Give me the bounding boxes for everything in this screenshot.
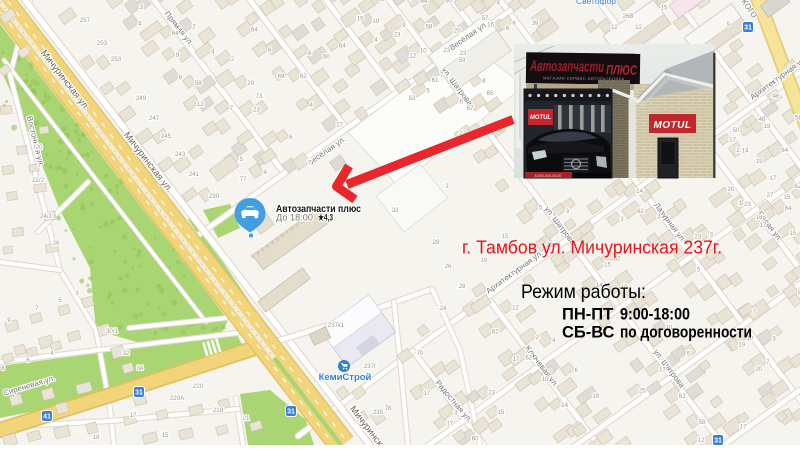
svg-text:17: 17: [446, 420, 453, 427]
svg-text:9: 9: [402, 22, 406, 29]
svg-text:12: 12: [611, 24, 618, 31]
svg-text:58: 58: [425, 23, 432, 30]
svg-text:12: 12: [197, 101, 204, 108]
svg-text:243: 243: [175, 151, 186, 158]
svg-text:8: 8: [482, 78, 486, 85]
svg-text:218: 218: [213, 407, 224, 414]
svg-text:по договоренности: по договоренности: [620, 324, 752, 342]
svg-text:245: 245: [161, 133, 172, 140]
svg-text:20: 20: [755, 366, 762, 373]
svg-text:9: 9: [7, 317, 11, 324]
svg-text:17: 17: [130, 412, 137, 419]
svg-text:6: 6: [268, 47, 272, 54]
svg-text:31: 31: [287, 409, 295, 416]
svg-text:15: 15: [487, 21, 494, 28]
svg-text:64: 64: [339, 42, 346, 49]
svg-text:41: 41: [43, 414, 51, 421]
svg-text:62: 62: [679, 393, 686, 400]
svg-text:60: 60: [445, 0, 452, 4]
svg-text:6: 6: [289, 134, 293, 141]
svg-text:17: 17: [770, 175, 777, 182]
svg-text:14: 14: [636, 188, 643, 195]
svg-text:15: 15: [357, 15, 364, 22]
svg-text:22/2: 22/2: [32, 177, 45, 184]
svg-text:9: 9: [176, 52, 180, 59]
svg-text:4: 4: [50, 350, 54, 357]
svg-text:19: 19: [756, 158, 763, 165]
svg-text:58: 58: [795, 115, 800, 122]
svg-text:4: 4: [138, 20, 142, 27]
svg-text:3: 3: [454, 410, 458, 417]
svg-text:23: 23: [488, 390, 495, 397]
svg-text:4: 4: [374, 37, 378, 44]
svg-text:62: 62: [794, 183, 800, 190]
svg-text:220А: 220А: [170, 395, 185, 402]
svg-text:5: 5: [687, 351, 691, 358]
svg-text:24/1: 24/1: [40, 213, 53, 220]
svg-text:2: 2: [231, 56, 235, 63]
svg-text:28: 28: [459, 283, 466, 290]
svg-text:64: 64: [785, 205, 792, 212]
svg-text:MOTUL: MOTUL: [653, 120, 691, 131]
svg-text:237г: 237г: [364, 363, 377, 370]
svg-text:64: 64: [251, 27, 258, 34]
svg-text:12: 12: [635, 24, 642, 31]
svg-text:237к1: 237к1: [328, 322, 345, 329]
svg-text:14: 14: [561, 402, 568, 409]
svg-text:5: 5: [539, 204, 543, 211]
svg-text:235: 235: [373, 409, 384, 416]
svg-text:33: 33: [392, 207, 399, 214]
svg-text:4: 4: [263, 169, 267, 176]
svg-text:★4,3: ★4,3: [318, 213, 333, 224]
svg-text:5: 5: [240, 156, 244, 163]
svg-text:6: 6: [506, 25, 510, 32]
svg-text:50: 50: [733, 127, 740, 134]
svg-text:60: 60: [323, 53, 330, 60]
svg-text:59: 59: [459, 57, 466, 64]
svg-text:17: 17: [513, 356, 520, 363]
svg-text:73: 73: [256, 93, 263, 100]
svg-text:19: 19: [592, 393, 599, 400]
svg-text:78: 78: [385, 405, 392, 412]
svg-text:23: 23: [253, 107, 260, 114]
svg-text:12: 12: [698, 437, 705, 444]
svg-text:г. Тамбов ул. Мичуринская 237г: г. Тамбов ул. Мичуринская 237г.: [462, 237, 722, 258]
svg-text:63: 63: [409, 95, 416, 102]
svg-text:39: 39: [532, 20, 539, 27]
svg-text:46: 46: [773, 93, 780, 100]
svg-text:19: 19: [372, 18, 379, 25]
svg-text:До 18:00: До 18:00: [276, 213, 313, 224]
svg-text:69: 69: [278, 73, 285, 80]
svg-text:241: 241: [189, 171, 200, 178]
svg-text:3: 3: [772, 335, 776, 342]
svg-text:31: 31: [744, 25, 752, 32]
svg-text:15: 15: [661, 5, 668, 12]
svg-text:10: 10: [420, 48, 427, 55]
svg-text:67: 67: [467, 105, 474, 112]
svg-text:58: 58: [195, 80, 202, 87]
svg-text:7: 7: [308, 159, 312, 166]
svg-text:48: 48: [759, 116, 766, 123]
svg-text:Режим работы:: Режим работы:: [521, 281, 646, 303]
svg-text:62: 62: [492, 328, 499, 335]
svg-text:34: 34: [137, 365, 144, 372]
svg-text:62: 62: [637, 208, 644, 215]
svg-text:19: 19: [763, 123, 770, 130]
svg-text:9: 9: [179, 74, 183, 81]
svg-text:15: 15: [784, 194, 791, 201]
svg-text:31: 31: [714, 438, 722, 445]
svg-text:17: 17: [659, 367, 666, 374]
svg-text:9: 9: [726, 21, 730, 28]
svg-text:70: 70: [417, 350, 424, 357]
svg-text:3: 3: [620, 216, 624, 223]
svg-text:25: 25: [639, 387, 646, 394]
svg-text:19: 19: [481, 257, 488, 264]
svg-text:5: 5: [426, 87, 430, 94]
svg-text:18: 18: [93, 434, 100, 441]
svg-text:60: 60: [472, 435, 479, 442]
svg-text:64: 64: [781, 147, 788, 154]
svg-text:3: 3: [140, 4, 144, 11]
svg-text:4: 4: [309, 102, 313, 109]
svg-text:15: 15: [497, 409, 504, 416]
svg-text:14: 14: [742, 148, 749, 155]
svg-text:61: 61: [432, 77, 439, 84]
svg-text:5: 5: [697, 267, 701, 274]
svg-text:23: 23: [443, 47, 450, 54]
svg-text:3: 3: [657, 214, 661, 221]
svg-text:31: 31: [135, 390, 143, 397]
svg-text:3: 3: [75, 290, 79, 297]
svg-text:253: 253: [97, 40, 108, 47]
svg-text:17: 17: [336, 121, 343, 128]
svg-text:7: 7: [230, 105, 234, 112]
svg-text:77: 77: [240, 176, 247, 183]
svg-text:32: 32: [123, 350, 130, 357]
svg-text:6: 6: [459, 98, 463, 105]
svg-text:4: 4: [552, 337, 556, 344]
svg-text:15: 15: [162, 432, 169, 439]
svg-text:58: 58: [698, 419, 705, 426]
svg-text:15: 15: [604, 261, 611, 268]
svg-text:20: 20: [454, 28, 461, 35]
svg-text:2: 2: [407, 0, 411, 3]
svg-text:26В: 26В: [622, 13, 633, 20]
svg-text:-24: -24: [438, 305, 448, 312]
svg-text:23: 23: [744, 201, 751, 208]
svg-text:30/1: 30/1: [106, 328, 119, 335]
svg-text:20: 20: [36, 144, 43, 151]
svg-text:7: 7: [766, 359, 770, 366]
svg-text:9:00-18:00: 9:00-18:00: [620, 306, 690, 324]
svg-text:17: 17: [759, 222, 766, 229]
svg-text:28: 28: [433, 239, 440, 246]
svg-text:7: 7: [440, 72, 444, 79]
svg-text:16: 16: [756, 214, 763, 221]
svg-text:64: 64: [420, 0, 427, 5]
svg-text:3: 3: [445, 183, 449, 190]
svg-text:19: 19: [738, 342, 745, 349]
svg-text:257: 257: [80, 17, 91, 24]
svg-text:10: 10: [542, 376, 549, 383]
svg-text:17: 17: [424, 390, 431, 397]
svg-text:2: 2: [536, 334, 540, 341]
svg-text:253: 253: [111, 56, 122, 63]
svg-text:239: 239: [209, 193, 220, 200]
svg-text:12: 12: [512, 305, 519, 312]
svg-text:20: 20: [728, 186, 735, 193]
svg-text:12: 12: [409, 52, 416, 59]
svg-text:7: 7: [35, 305, 39, 312]
svg-text:17: 17: [729, 136, 736, 143]
svg-text:249: 249: [136, 95, 147, 102]
svg-text:62: 62: [525, 354, 532, 361]
svg-text:247: 247: [149, 115, 160, 122]
svg-text:27: 27: [767, 192, 774, 199]
svg-text:9: 9: [512, 21, 516, 28]
svg-text:7: 7: [753, 309, 757, 316]
svg-text:Автозапчасти: Автозапчасти: [529, 58, 604, 76]
svg-text:20: 20: [247, 80, 254, 87]
svg-text:10: 10: [381, 0, 388, 2]
svg-text:26: 26: [53, 240, 60, 247]
svg-text:6: 6: [308, 50, 312, 57]
svg-text:4: 4: [496, 0, 500, 7]
svg-text:21: 21: [243, 415, 250, 422]
svg-text:26: 26: [445, 263, 452, 270]
svg-text:23: 23: [394, 31, 401, 38]
svg-text:64: 64: [172, 30, 179, 37]
svg-text:65: 65: [487, 90, 494, 97]
svg-text:2: 2: [192, 23, 196, 30]
svg-text:КемиСтрой: КемиСтрой: [319, 372, 372, 383]
svg-text:6: 6: [575, 367, 579, 374]
svg-text:23: 23: [460, 50, 467, 57]
svg-text:6: 6: [26, 357, 30, 364]
svg-text:СБ-ВС: СБ-ВС: [562, 324, 615, 342]
svg-text:17: 17: [740, 424, 747, 431]
svg-text:MOTUL: MOTUL: [530, 115, 551, 121]
svg-text:ПН-ПТ: ПН-ПТ: [562, 306, 613, 324]
svg-text:5: 5: [58, 297, 62, 304]
svg-text:3: 3: [566, 208, 570, 215]
svg-text:8: 8: [1, 365, 5, 372]
svg-text:62: 62: [300, 73, 307, 80]
svg-text:220: 220: [193, 383, 204, 390]
svg-text:8-900-000-00-00: 8-900-000-00-00: [535, 174, 562, 178]
svg-text:Светофор: Светофор: [576, 0, 616, 6]
svg-text:4: 4: [211, 49, 215, 56]
svg-text:15: 15: [789, 230, 796, 237]
